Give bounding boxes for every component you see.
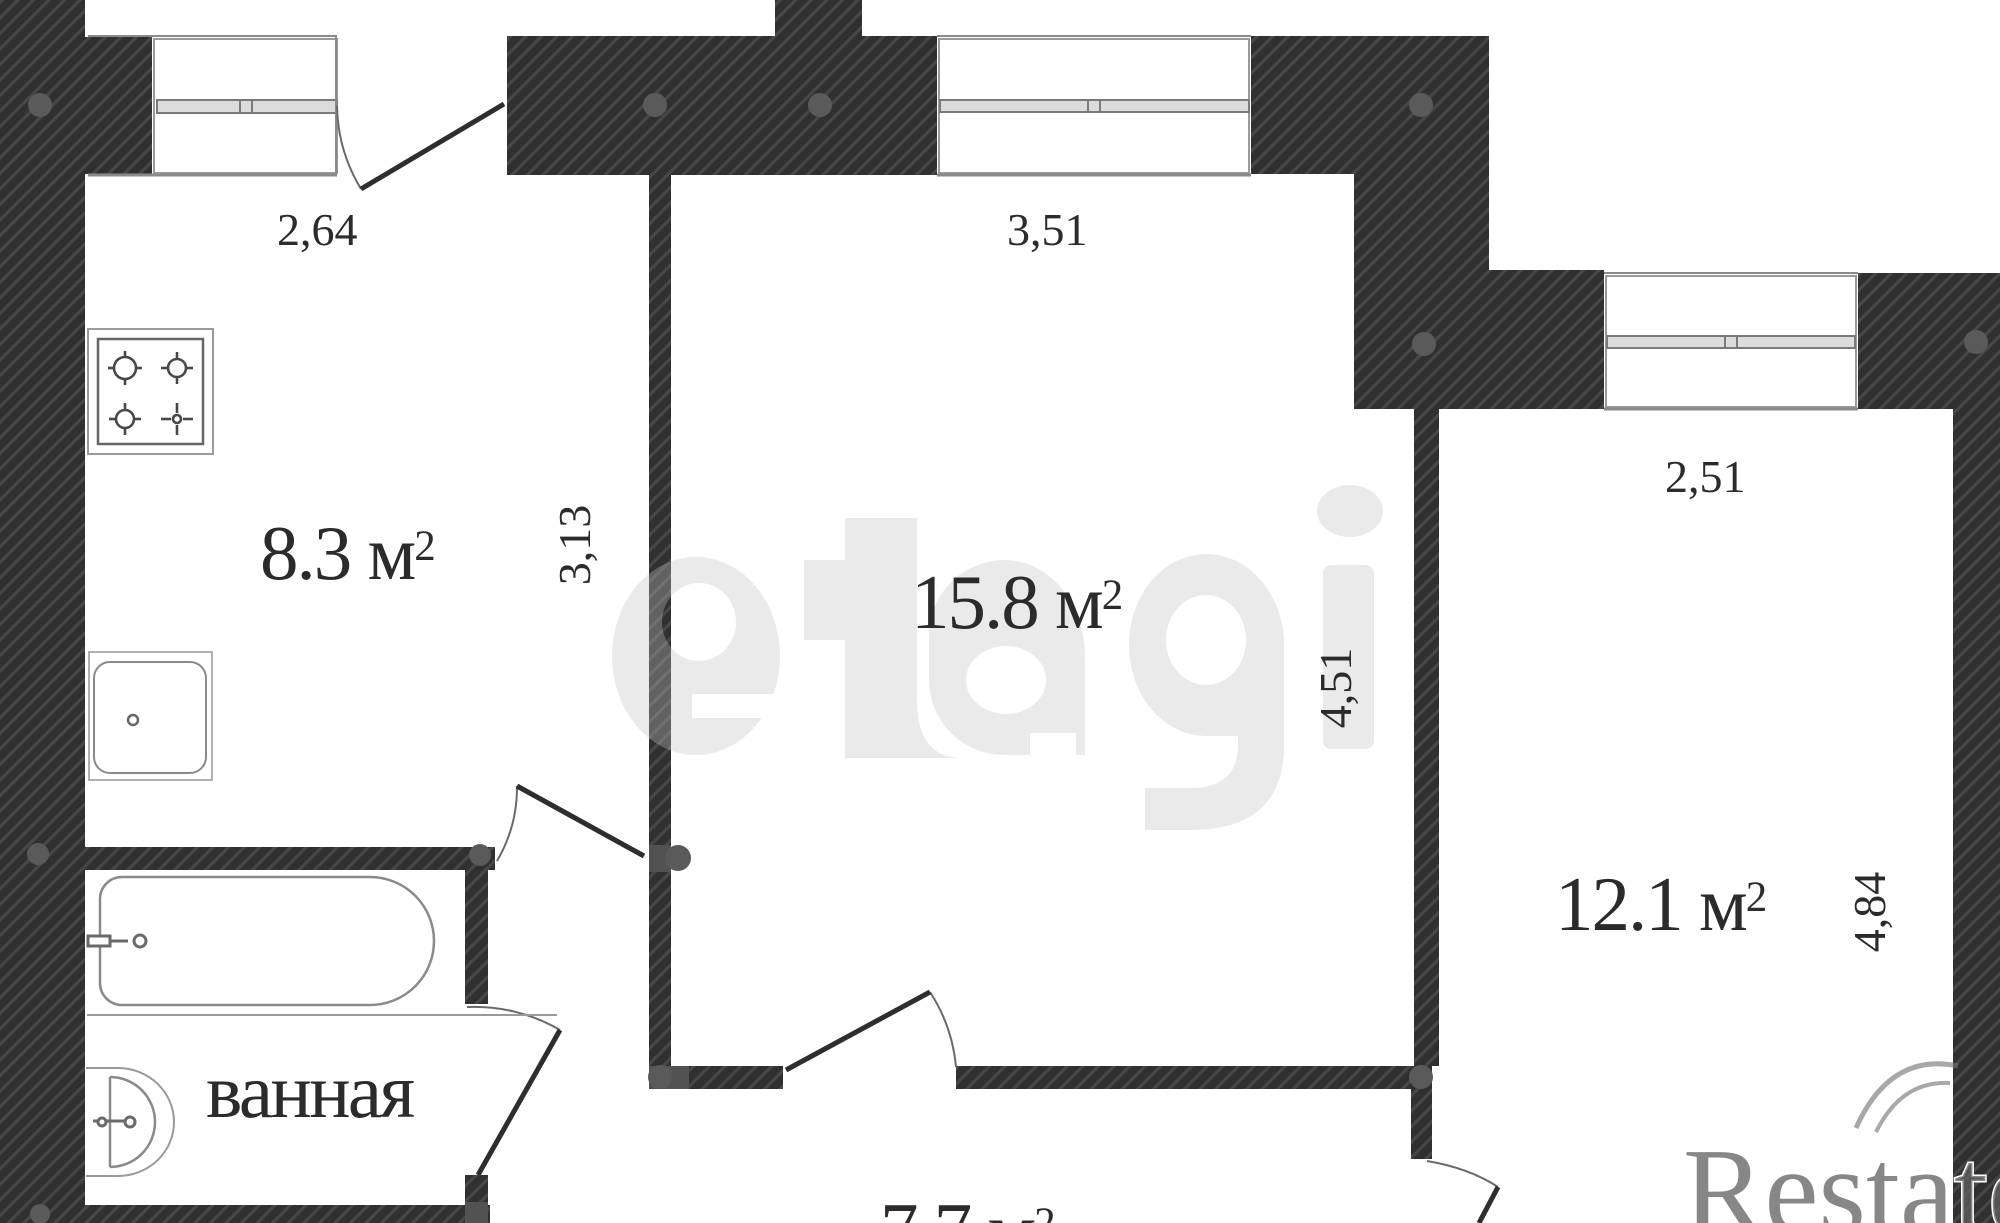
- svg-text:15.8 м2: 15.8 м2: [911, 559, 1122, 645]
- svg-text:8.3 м2: 8.3 м2: [260, 510, 434, 596]
- svg-text:ванная: ванная: [206, 1048, 415, 1134]
- svg-text:12.1 м2: 12.1 м2: [1555, 861, 1766, 947]
- svg-text:2,64: 2,64: [277, 204, 358, 255]
- svg-text:4,51: 4,51: [1310, 648, 1361, 729]
- svg-text:4,84: 4,84: [1844, 872, 1895, 953]
- svg-text:3,51: 3,51: [1007, 204, 1088, 255]
- svg-text:7.7 м2: 7.7 м2: [880, 1187, 1054, 1223]
- svg-text:2,51: 2,51: [1665, 451, 1746, 502]
- svg-text:3,13: 3,13: [549, 505, 600, 586]
- svg-text:Restate: Restate: [1683, 1124, 2000, 1223]
